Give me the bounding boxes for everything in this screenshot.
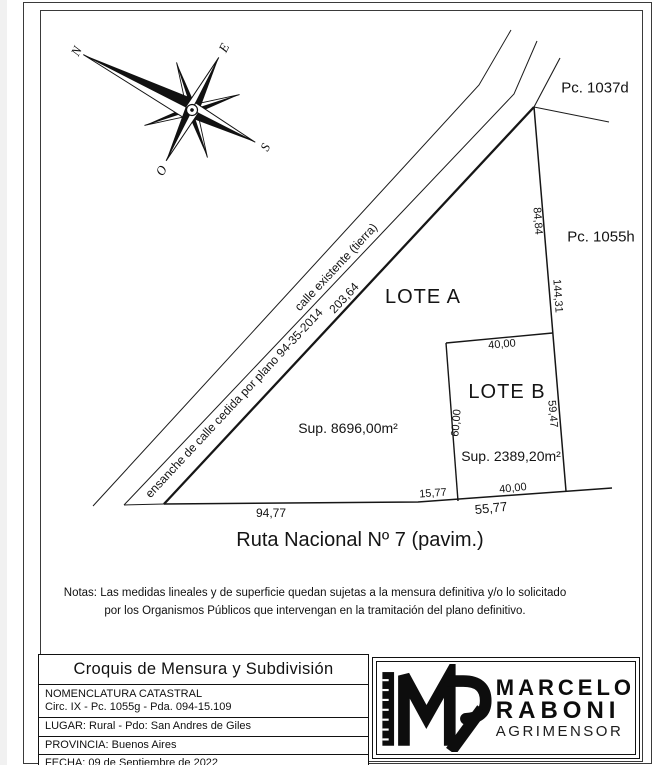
measurement-east-total: 144,31 bbox=[550, 279, 563, 313]
front-boundary-line bbox=[164, 488, 612, 504]
drawing-title: Croquis de Mensura y Subdivisión bbox=[39, 655, 368, 685]
parcel-label-1037d: Pc. 1037d bbox=[561, 81, 629, 96]
national-route-label: Ruta Nacional Nº 7 (pavim.) bbox=[236, 530, 483, 550]
lugar-row: LUGAR: Rural - Pdo: San Andres de Giles bbox=[39, 718, 368, 737]
compass-cardinal-points bbox=[57, 2, 282, 193]
measurement-front-gap: 15,77 bbox=[419, 488, 447, 501]
notes-line-2: por los Organismos Públicos que interven… bbox=[50, 602, 580, 620]
measurement-east-upper: 84,84 bbox=[531, 207, 544, 235]
lot-b-area: Sup. 2389,20m² bbox=[461, 449, 561, 463]
nomenclatura-row: NOMENCLATURA CATASTRAL Circ. IX - Pc. 10… bbox=[39, 685, 368, 718]
logo-first-name: MARCELO bbox=[496, 677, 635, 699]
compass-east-label: E bbox=[215, 41, 232, 56]
measurement-front-right-total: 55,77 bbox=[474, 500, 508, 516]
logo-text: MARCELO RABONI AGRIMENSOR bbox=[496, 677, 635, 740]
nw-boundary-line bbox=[164, 107, 534, 504]
lot-a-area: Sup. 8696,00m² bbox=[298, 421, 398, 435]
logo-inner-frame: MARCELO RABONI AGRIMENSOR bbox=[376, 661, 636, 755]
lot-a-name: LOTE A bbox=[385, 287, 461, 307]
lot-b-name: LOTE B bbox=[468, 382, 545, 402]
logo-profession: AGRIMENSOR bbox=[496, 723, 635, 740]
measurement-lot-b-right: 59,47 bbox=[545, 400, 558, 428]
nomenclatura-label: NOMENCLATURA CATASTRAL bbox=[45, 688, 362, 701]
notes-line-1: Notas: Las medidas lineales y de superfi… bbox=[50, 584, 580, 602]
compass-north-label: N bbox=[67, 43, 85, 60]
measurement-front-left: 94,77 bbox=[256, 507, 286, 519]
provincia-row: PROVINCIA: Buenos Aires bbox=[39, 737, 368, 756]
nomenclatura-value: Circ. IX - Pc. 1055g - Pda. 094-15.109 bbox=[45, 701, 362, 714]
survey-drawing: N E S O bbox=[0, 0, 667, 765]
survey-sheet: N E S O Pc. 1037d Pc. 1055h LOTE A Sup. … bbox=[0, 0, 667, 765]
fecha-row: FECHA: 09 de Septiembre de 2022 bbox=[39, 755, 368, 765]
parcel-label-1055h: Pc. 1055h bbox=[567, 230, 635, 245]
surveyor-logo-box: MARCELO RABONI AGRIMENSOR bbox=[372, 657, 640, 759]
compass-rose: N E S O bbox=[36, 0, 305, 215]
compass-west-label: O bbox=[152, 162, 170, 178]
compass-south-label: S bbox=[257, 140, 274, 153]
title-block: Croquis de Mensura y Subdivisión NOMENCL… bbox=[38, 654, 369, 765]
notes-block: Notas: Las medidas lineales y de superfi… bbox=[50, 584, 580, 620]
mr-monogram-icon bbox=[377, 664, 494, 752]
logo-last-name: RABONI bbox=[496, 699, 635, 723]
